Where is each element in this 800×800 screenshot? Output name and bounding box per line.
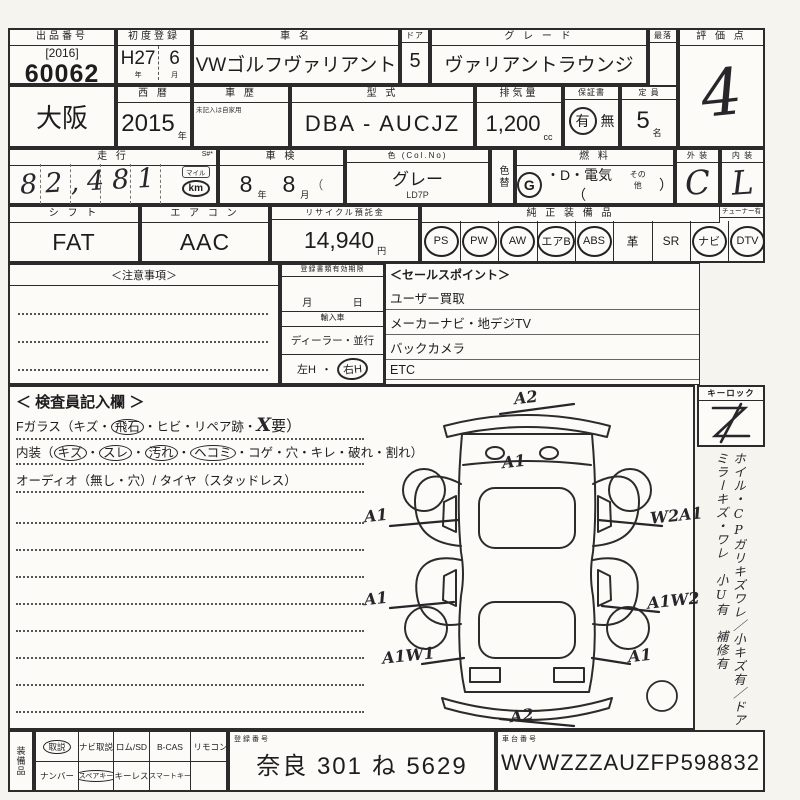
interior-grade-value: L bbox=[721, 162, 765, 203]
aircon-box: エ ア コ ン AAC bbox=[140, 205, 270, 263]
sales-point-item: ユーザー買取 bbox=[386, 285, 699, 310]
recycle-deposit-box: リサイクル預託金 14,940 円 bbox=[270, 205, 420, 263]
accessory-number-plate-text: ナンバー bbox=[40, 770, 74, 782]
warranty-box: 保証書 有 無 bbox=[563, 85, 620, 148]
accessory-bcas-text: B-CAS bbox=[157, 742, 183, 752]
west-year-unit: 年 bbox=[178, 129, 187, 142]
inspection-year: 8 bbox=[240, 171, 253, 198]
audio-tire-line: オーディオ（無し・穴）/ タイヤ（スタッドレス） bbox=[16, 470, 364, 493]
interior-sure-circled: スレ bbox=[99, 445, 132, 461]
accessory-number-plate: ナンバー bbox=[36, 762, 79, 790]
keylock-box: キーロック bbox=[697, 385, 765, 447]
interior-kizu-circled: キズ bbox=[54, 445, 87, 461]
inspection-box: 車 検 8 年 8 月 （ bbox=[218, 148, 345, 205]
warranty-label: 保証書 bbox=[565, 87, 618, 100]
accessory-rom-sd-text: ロム/SD bbox=[116, 741, 147, 753]
aircon-label: エ ア コ ン bbox=[142, 207, 268, 223]
accessory-spare-key: スペアキー bbox=[79, 762, 114, 790]
car-name-label: 車 名 bbox=[194, 30, 398, 46]
accessory-spare-key-text: スペアキー bbox=[79, 770, 114, 782]
chassis-number-value: WVWZZZAUZFP598832 bbox=[498, 744, 763, 782]
warranty-yes-circled: 有 bbox=[569, 107, 597, 135]
sales-point-item: ETC bbox=[386, 360, 699, 380]
inspector-blank-line bbox=[16, 522, 364, 524]
color-value: グレー bbox=[347, 165, 488, 190]
recycle-deposit-value: 14,940 bbox=[304, 227, 374, 254]
sales-points-box: ＜セールスポイント＞ ユーザー買取 メーカーナビ・地デジTV バックカメラ ET… bbox=[385, 263, 700, 385]
color-change-box: 色替 bbox=[490, 148, 515, 205]
auction-number-box: 出品番号 [2016] 60062 bbox=[8, 28, 116, 85]
auction-number-label: 出品番号 bbox=[10, 30, 114, 46]
chassis-number-label: 車台番号 bbox=[498, 732, 763, 744]
shift-value: FAT bbox=[10, 223, 138, 263]
first-registration-label: 初度登録 bbox=[118, 30, 190, 46]
shift-box: シ フ ト FAT bbox=[8, 205, 140, 263]
color-change-label: 色替 bbox=[495, 150, 510, 203]
recycle-deposit-unit: 円 bbox=[377, 244, 386, 257]
capacity-label: 定 員 bbox=[622, 87, 676, 100]
equipment-navi: ナビ bbox=[692, 226, 727, 257]
auction-year: [2016] bbox=[10, 47, 114, 60]
west-year-value: 2015 bbox=[121, 110, 174, 138]
car-name-value: VWゴルフヴァリアント bbox=[194, 46, 398, 82]
model-code-label: 型 式 bbox=[292, 87, 473, 103]
dot-separator: ・ bbox=[178, 446, 191, 460]
shift-label: シ フ ト bbox=[10, 207, 138, 223]
fglass-post: 要） bbox=[271, 418, 301, 435]
notes-title: ＜注意事項＞ bbox=[10, 265, 278, 286]
capacity-unit: 名 bbox=[653, 126, 662, 139]
damage-mark-left-rear-door: A1 bbox=[363, 588, 388, 609]
equipment-abs: ABS bbox=[577, 226, 612, 257]
fuel-paren-close: ） bbox=[659, 175, 673, 195]
notes-line bbox=[18, 341, 268, 343]
history-box: 車 歴 未記入は自家用 bbox=[192, 85, 290, 148]
inspection-paren: （ bbox=[311, 176, 323, 193]
interior-label: 内装（ bbox=[16, 446, 54, 460]
mileage-marker: S#* bbox=[202, 151, 213, 160]
west-year-box: 西 暦 2015 年 bbox=[116, 85, 192, 148]
equipment-item-sr: SR bbox=[652, 221, 691, 261]
car-name-box: 車 名 VWゴルフヴァリアント bbox=[192, 28, 400, 85]
fglass-mid: ・ヒビ・リペア跡・ bbox=[144, 420, 257, 434]
docs-dealer-label: ディーラー・並行 bbox=[282, 327, 383, 355]
mileage-box: 走 行 S#* 82,481 マイル km bbox=[8, 148, 218, 205]
registration-docs-box: 登録書類有効期限 月 日 輸入車 ディーラー・並行 左H ・ 右H bbox=[280, 263, 385, 385]
reserve-label: 最落 bbox=[650, 30, 676, 43]
model-code-value: DBA - AUCJZ bbox=[292, 103, 473, 145]
interior-grade-box: 内 装 L bbox=[720, 148, 765, 205]
inspection-label: 車 検 bbox=[220, 150, 343, 166]
equipment-sr: SR bbox=[661, 232, 682, 250]
equipment-item-leather: 革 bbox=[613, 221, 653, 261]
grade-value: ヴァリアントラウンジ bbox=[432, 46, 646, 82]
inspector-blank-line bbox=[16, 549, 364, 551]
region-value: 大阪 bbox=[10, 87, 114, 146]
accessories-label: 装備品 bbox=[15, 732, 28, 790]
accessory-keyless: キーレス bbox=[114, 762, 150, 790]
accessory-smart-key-text: スマートキー bbox=[150, 771, 191, 781]
equipment-item-abs: ABS bbox=[575, 221, 614, 261]
keylock-label: キーロック bbox=[699, 387, 763, 401]
grade-box: グ レ ー ド ヴァリアントラウンジ bbox=[430, 28, 648, 85]
fglass-line: Fガラス（キズ・飛石・ヒビ・リペア跡・X要） bbox=[16, 414, 364, 440]
damage-mark-front-bumper: A2 bbox=[513, 387, 538, 408]
damage-mark-left-front: A1 bbox=[363, 505, 388, 526]
notes-line bbox=[18, 369, 268, 371]
accessory-keyless-text: キーレス bbox=[114, 770, 148, 782]
accessory-manual: 取説 bbox=[36, 732, 79, 762]
accessory-remote-text: リモコン bbox=[193, 741, 227, 753]
docs-import-label: 輸入車 bbox=[282, 312, 383, 327]
fuel-box: 燃 料 G ・D・電気（ その他 ） bbox=[515, 148, 675, 205]
warranty-no: 無 bbox=[601, 111, 615, 131]
equipment-item-aw: AW bbox=[498, 221, 538, 261]
recycle-deposit-label: リサイクル預託金 bbox=[272, 207, 418, 220]
equipment-item-navi: ナビ bbox=[690, 221, 729, 261]
color-code: LD7P bbox=[347, 190, 488, 200]
equipment-dtv: DTV bbox=[730, 226, 765, 257]
exterior-grade-value: C bbox=[676, 162, 720, 203]
inspector-blank-line bbox=[16, 576, 364, 578]
equipment-box: 純 正 装 備 品 チューナー有 PS PW AW エアB ABS 革 SR ナ… bbox=[420, 205, 765, 263]
exterior-grade-box: 外 装 C bbox=[675, 148, 720, 205]
score-value: 4 bbox=[675, 41, 767, 144]
fuel-gasoline-circled: G bbox=[517, 172, 542, 198]
mileage-value-handwritten: 82,481 bbox=[19, 162, 163, 200]
damage-mark-right-rear-quarter: A1 bbox=[627, 645, 652, 666]
equipment-pw: PW bbox=[462, 226, 497, 257]
equipment-leather: 革 bbox=[624, 231, 640, 252]
interior-hekomi-circled: ヘコミ bbox=[190, 445, 236, 461]
door-value: 5 bbox=[402, 43, 428, 79]
accessory-empty-cell bbox=[191, 762, 230, 790]
first-registration-era: H27 bbox=[121, 48, 156, 70]
mileage-unit-mile: マイル bbox=[182, 166, 210, 178]
inspector-blank-line bbox=[16, 630, 364, 632]
fuel-options: ・D・電気（ bbox=[542, 165, 617, 205]
accessory-navi-manual-text: ナビ取説 bbox=[79, 741, 113, 753]
equipment-tuner-label: チューナー有 bbox=[720, 207, 763, 218]
car-damage-diagram: A2 A1 A1 W2A1 A1 A1W2 A1W1 A1 A2 bbox=[362, 392, 692, 728]
registration-number-value: 奈良 301 ね 5629 bbox=[230, 744, 494, 782]
inspector-blank-line bbox=[16, 657, 364, 659]
equipment-item-dtv: DTV bbox=[728, 221, 767, 261]
fglass-flying-stone-circled: 飛石 bbox=[111, 419, 144, 435]
history-label: 車 歴 bbox=[194, 87, 288, 103]
accessory-bcas: B-CAS bbox=[150, 732, 191, 762]
model-code-box: 型 式 DBA - AUCJZ bbox=[290, 85, 475, 148]
region-box: 大阪 bbox=[8, 85, 116, 148]
accessory-navi-manual: ナビ取説 bbox=[79, 732, 114, 762]
sales-point-item: メーカーナビ・地デジTV bbox=[386, 310, 699, 335]
first-registration-month-unit: 月 bbox=[171, 70, 178, 80]
docs-left-handle: 左H bbox=[297, 361, 316, 377]
door-label: ドア bbox=[402, 30, 428, 43]
displacement-value: 1,200 bbox=[485, 111, 540, 137]
displacement-unit: cc bbox=[544, 132, 553, 142]
notes-line bbox=[18, 313, 268, 315]
mileage-label: 走 行 bbox=[97, 151, 129, 162]
equipment-ps: PS bbox=[424, 226, 459, 257]
accessory-manual-text: 取説 bbox=[43, 740, 70, 754]
registration-number-label: 登録番号 bbox=[230, 732, 494, 744]
inspection-month-unit: 月 bbox=[300, 188, 309, 201]
grade-label: グ レ ー ド bbox=[432, 30, 646, 46]
interior-condition-line: 内装（キズ・スレ・汚れ・ヘコミ・コゲ・穴・キレ・破れ・割れ） bbox=[16, 442, 364, 465]
inspection-month: 8 bbox=[282, 171, 295, 198]
damage-mark-right-front: W2A1 bbox=[649, 503, 703, 527]
capacity-box: 定 員 5 名 bbox=[620, 85, 678, 148]
mileage-unit-km-circled: km bbox=[182, 180, 210, 197]
first-registration-box: 初度登録 H27 年 6 月 bbox=[116, 28, 192, 85]
displacement-box: 排気量 1,200 cc bbox=[475, 85, 563, 148]
fglass-x-handwritten: X bbox=[256, 414, 271, 436]
inspection-year-unit: 年 bbox=[257, 188, 266, 201]
capacity-value: 5 bbox=[636, 107, 649, 135]
damage-mark-hood: A1 bbox=[501, 451, 526, 472]
docs-month-label: 月 bbox=[302, 294, 312, 309]
docs-day-label: 日 bbox=[353, 294, 363, 309]
displacement-label: 排気量 bbox=[477, 87, 561, 103]
inspector-blank-line bbox=[16, 711, 364, 713]
interior-yogore-circled: 汚れ bbox=[145, 445, 178, 461]
auction-sheet: 出品番号 [2016] 60062 初度登録 H27 年 6 月 車 名 VWゴ… bbox=[0, 0, 800, 800]
accessories-grid: 取説 ナビ取説 ロム/SD B-CAS リモコン ナンバー スペアキー キーレス… bbox=[34, 730, 228, 792]
fglass-pre: Fガラス（キズ・ bbox=[16, 420, 111, 434]
inspector-blank-line bbox=[16, 603, 364, 605]
inspector-blank-line bbox=[16, 684, 364, 686]
equipment-airbag: エアB bbox=[537, 226, 574, 257]
docs-handle-separator: ・ bbox=[321, 361, 332, 377]
equipment-item-airbag: エアB bbox=[537, 221, 576, 261]
history-note: 未記入は自家用 bbox=[194, 103, 288, 115]
fuel-label: 燃 料 bbox=[517, 150, 673, 166]
chassis-number-box: 車台番号 WVWZZZAUZFP598832 bbox=[496, 730, 765, 792]
accessories-label-box: 装備品 bbox=[8, 730, 34, 792]
first-registration-month: 6 bbox=[169, 48, 180, 70]
damage-mark-rear-bumper: A2 bbox=[509, 705, 534, 726]
notes-box: ＜注意事項＞ bbox=[8, 263, 280, 385]
sales-point-item: バックカメラ bbox=[386, 335, 699, 360]
color-box: 色 (Col.No) グレー LD7P bbox=[345, 148, 490, 205]
fuel-other-label: その他 bbox=[627, 169, 649, 191]
docs-right-handle-circled: 右H bbox=[336, 356, 369, 381]
color-label: 色 (Col.No) bbox=[347, 150, 488, 163]
door-box: ドア 5 bbox=[400, 28, 430, 85]
sales-points-title: ＜セールスポイント＞ bbox=[386, 264, 699, 285]
keylock-handwritten-mark bbox=[699, 402, 763, 444]
equipment-aw: AW bbox=[500, 226, 535, 257]
first-registration-era-unit: 年 bbox=[135, 70, 142, 80]
west-year-label: 西 暦 bbox=[118, 87, 190, 103]
car-top-view-drawing bbox=[362, 392, 692, 728]
score-box: 評 価 点 4 bbox=[678, 28, 765, 148]
aircon-value: AAC bbox=[142, 223, 268, 263]
accessory-smart-key: スマートキー bbox=[150, 762, 191, 790]
docs-title: 登録書類有効期限 bbox=[282, 265, 383, 277]
accessory-rom-sd: ロム/SD bbox=[114, 732, 150, 762]
equipment-item-pw: PW bbox=[460, 221, 499, 261]
registration-number-box: 登録番号 奈良 301 ね 5629 bbox=[228, 730, 496, 792]
accessory-remote: リモコン bbox=[191, 732, 230, 762]
dot-separator: ・ bbox=[132, 446, 145, 460]
side-damage-note-handwritten: ホイル・CPガリキズワレ／小キズ有／ドアミラーキズ・ワレ 小U有 補修有 bbox=[712, 452, 747, 728]
equipment-item-ps: PS bbox=[422, 221, 461, 261]
dot-separator: ・ bbox=[87, 446, 100, 460]
